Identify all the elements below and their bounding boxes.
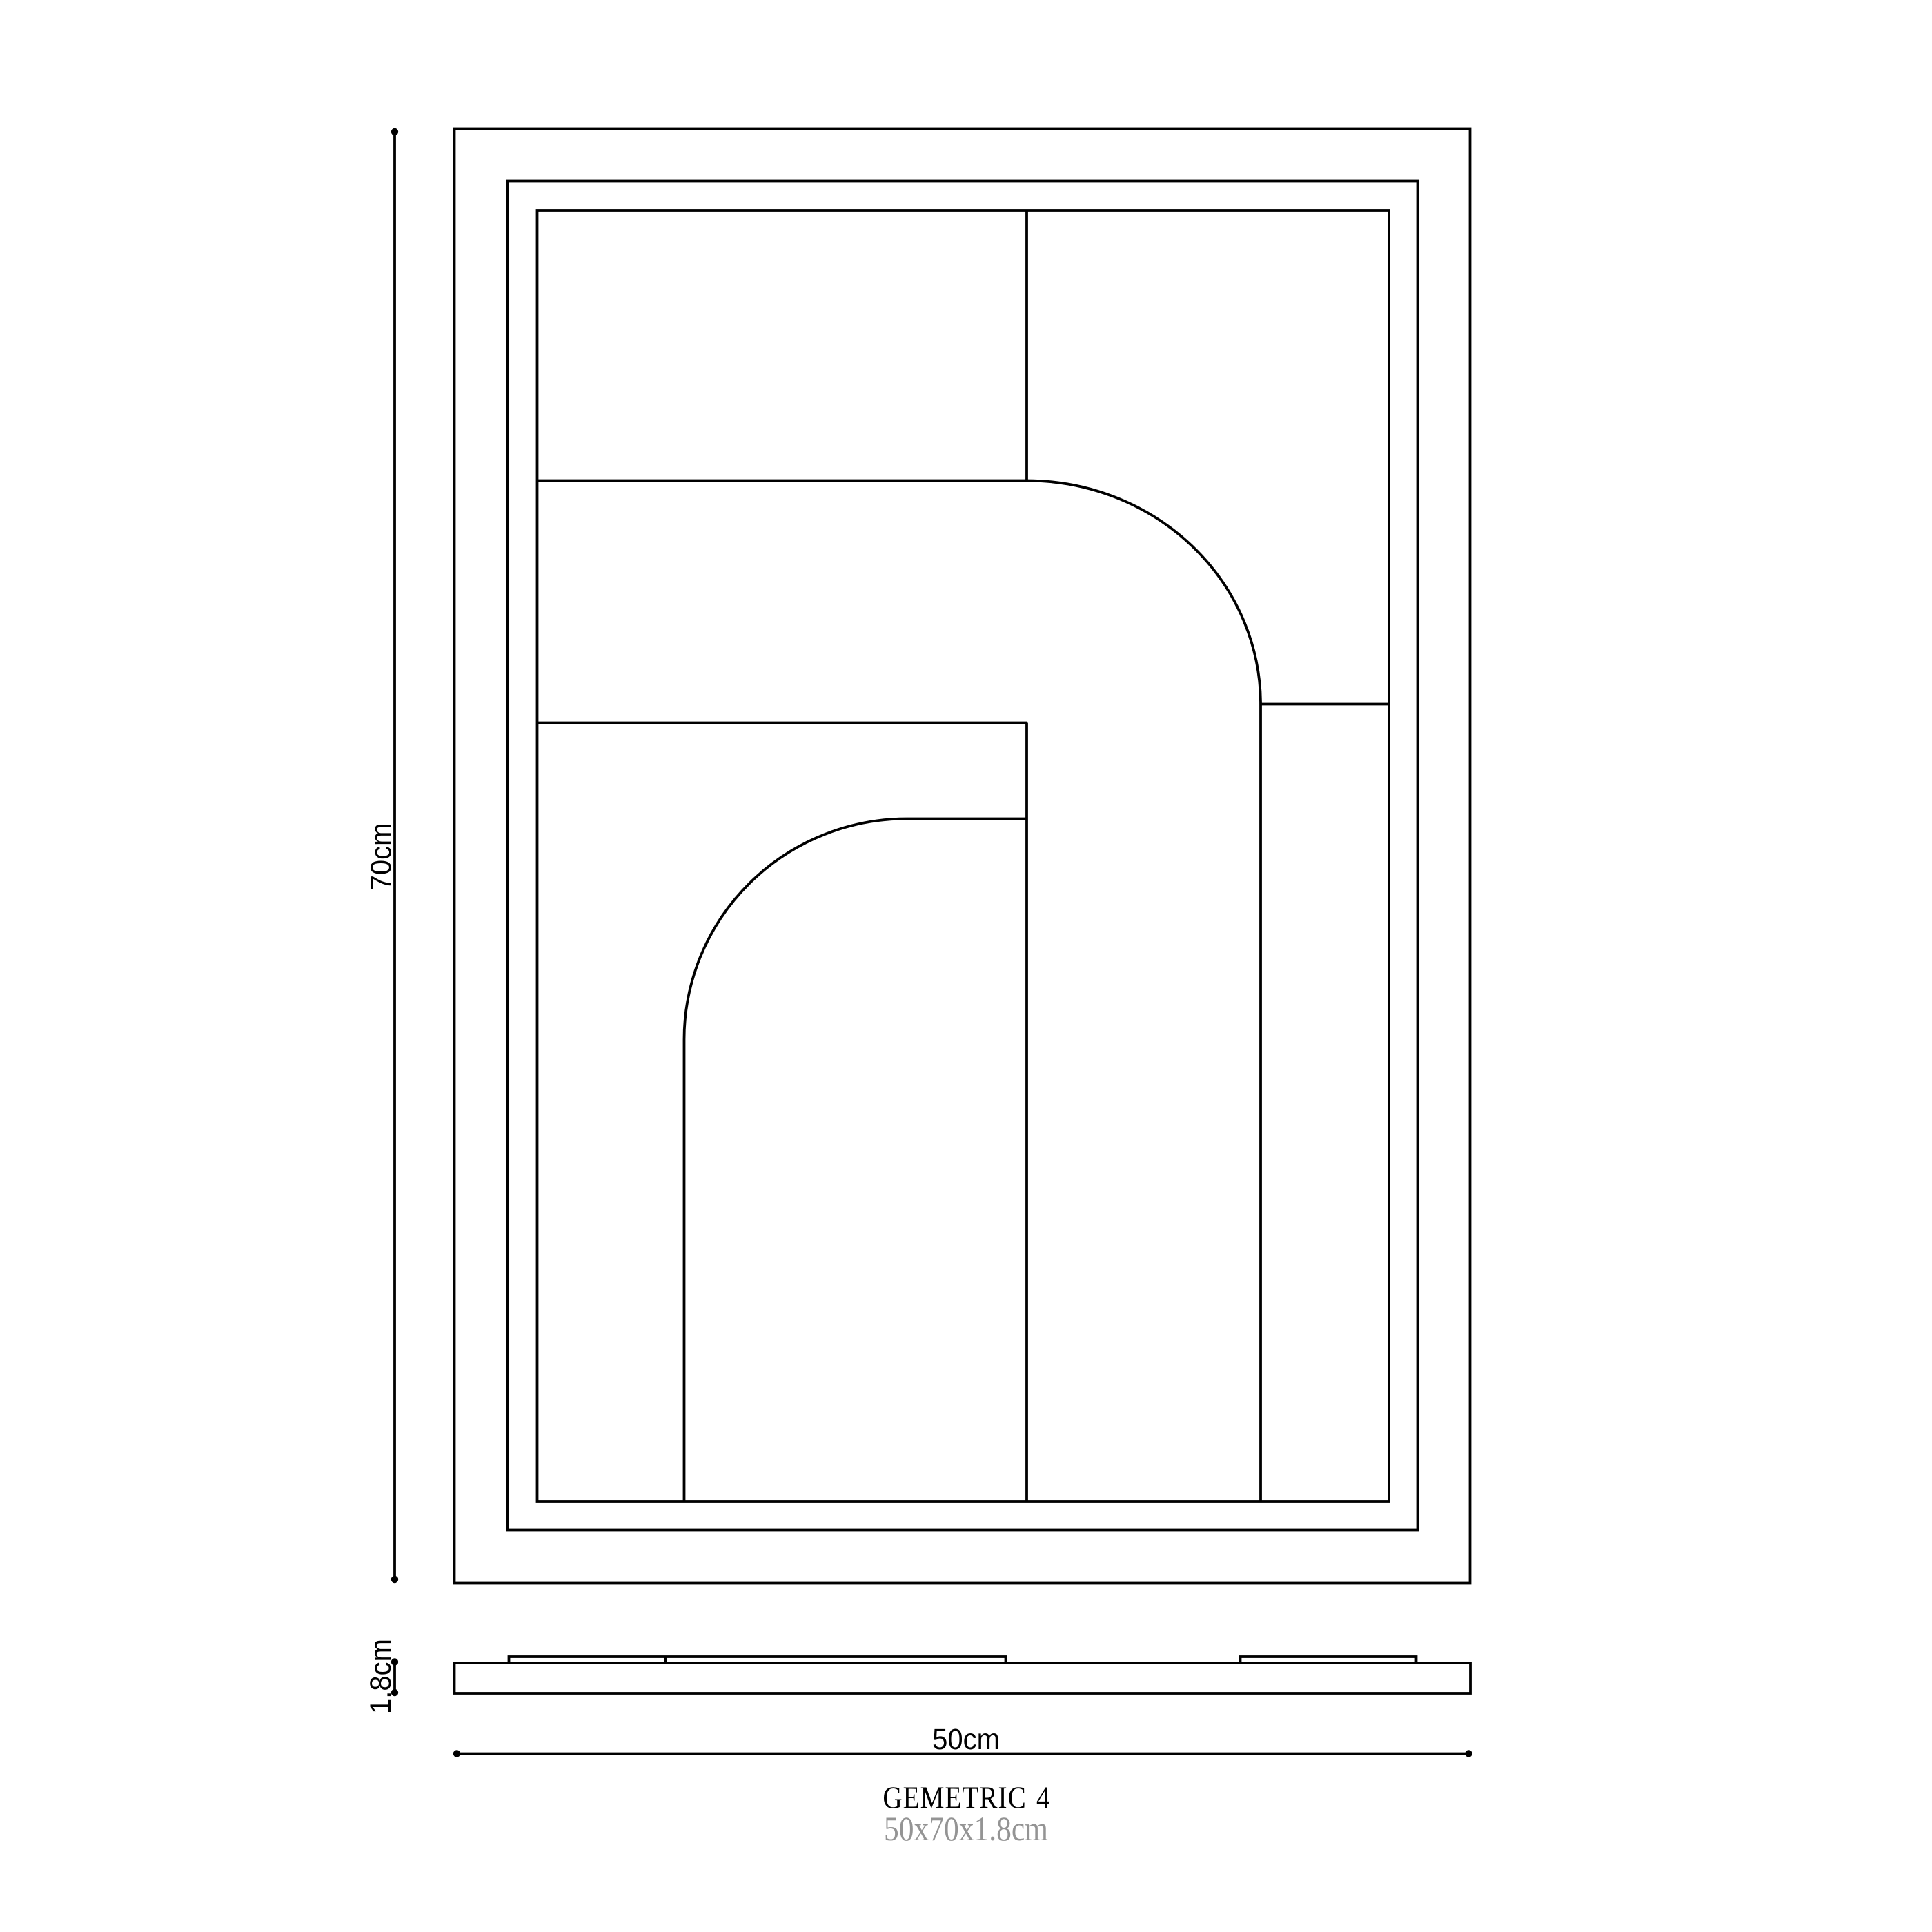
svg-text:50x70x1.8cm: 50x70x1.8cm — [884, 1810, 1048, 1848]
svg-text:1.8cm: 1.8cm — [364, 1639, 397, 1714]
svg-text:70cm: 70cm — [364, 823, 397, 891]
svg-text:50cm: 50cm — [932, 1722, 1000, 1756]
